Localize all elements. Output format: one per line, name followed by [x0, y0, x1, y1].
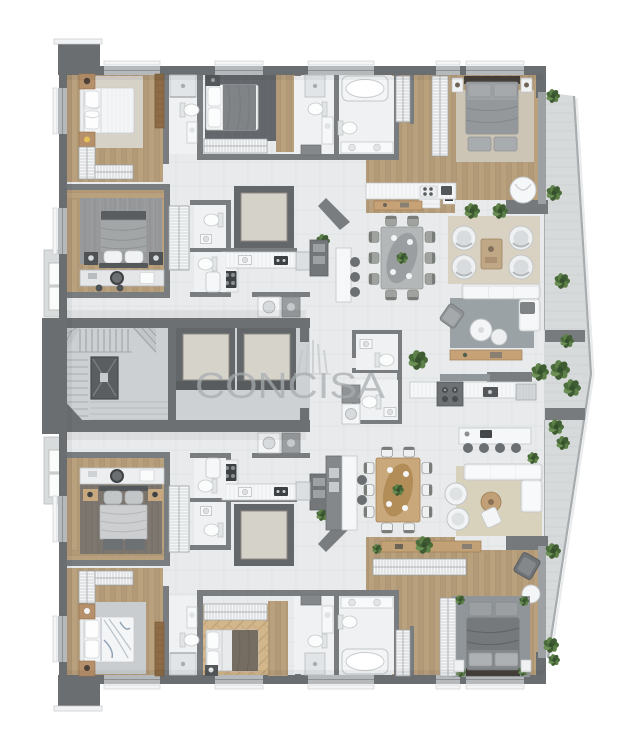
svg-text:CONCISA: CONCISA — [195, 365, 385, 406]
